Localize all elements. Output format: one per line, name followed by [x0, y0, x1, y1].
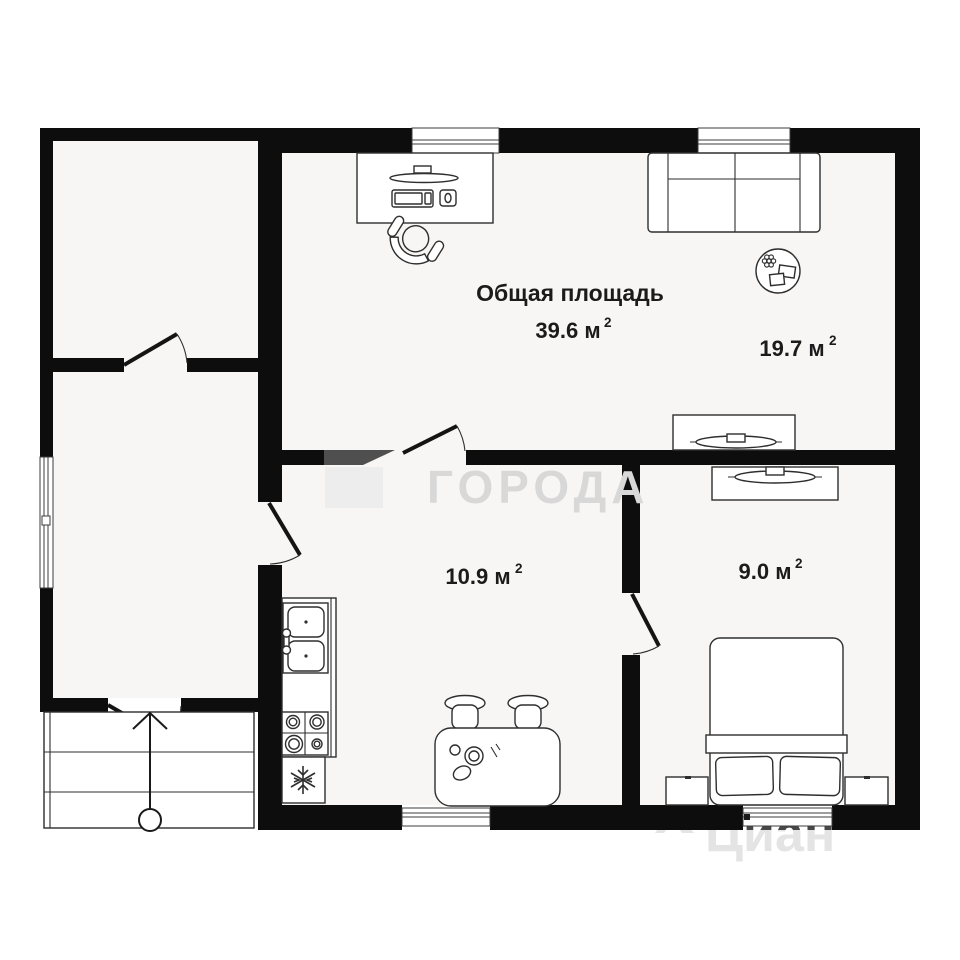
goroda-logo-icon [325, 467, 383, 508]
tv-stand-living [673, 415, 795, 450]
wall-segment [181, 698, 258, 712]
desk [357, 153, 493, 223]
wall-segment [895, 128, 920, 830]
fridge [282, 757, 325, 803]
pillow [780, 756, 841, 796]
label-bedroom-sup: 2 [795, 556, 803, 571]
wall-segment [40, 698, 108, 712]
label-living-room-area: 19.7 м [759, 336, 824, 361]
faucet-icon [283, 629, 291, 654]
label-total-area-sup: 2 [604, 315, 612, 330]
floor-plan: Циан ГОРОДА [0, 0, 960, 960]
monitor-icon [390, 174, 458, 183]
wall-segment [40, 128, 53, 457]
hall-floor [53, 141, 282, 698]
plant-icon [756, 249, 800, 293]
label-kitchen-sup: 2 [515, 561, 523, 576]
label-kitchen-area: 10.9 м [445, 564, 510, 589]
wall-segment [282, 128, 412, 153]
wall-segment [258, 141, 282, 502]
wall-segment [832, 805, 895, 830]
mouse-icon [440, 190, 456, 206]
wall-segment [40, 588, 53, 712]
watermark-goroda: ГОРОДА [325, 461, 650, 513]
nightstand-right [845, 776, 888, 805]
sofa [648, 153, 820, 232]
pillow [716, 756, 774, 795]
tv-stand-bedroom [712, 467, 838, 500]
wall-segment [622, 655, 640, 830]
window-bottom-bedroom [743, 808, 832, 826]
floor-plan-svg: Циан ГОРОДА [0, 0, 960, 960]
watermark-goroda-text: ГОРОДА [427, 461, 650, 513]
wall-segment [187, 358, 282, 372]
wall-segment [258, 805, 402, 830]
wall-segment [490, 805, 743, 830]
stove [282, 712, 328, 755]
label-bedroom-area: 9.0 м [739, 559, 792, 584]
nightstand-left [666, 776, 708, 805]
label-living-room-sup: 2 [829, 333, 837, 348]
bed [706, 638, 847, 805]
wall-segment [499, 128, 698, 153]
label-total-area-value: 39.6 м [535, 318, 600, 343]
window-left [40, 457, 53, 588]
entrance-porch [44, 712, 254, 831]
wall-segment [258, 565, 282, 830]
wall-segment [40, 358, 124, 372]
dining-table [435, 728, 560, 806]
window-bottom-kitchen [402, 808, 490, 826]
kitchen-sink [283, 603, 329, 673]
wall-segment [40, 128, 282, 141]
wall-segment [282, 450, 324, 465]
window-top-right [698, 128, 790, 153]
label-total-area-title: Общая площадь [476, 280, 664, 306]
window-top-left [412, 128, 499, 153]
